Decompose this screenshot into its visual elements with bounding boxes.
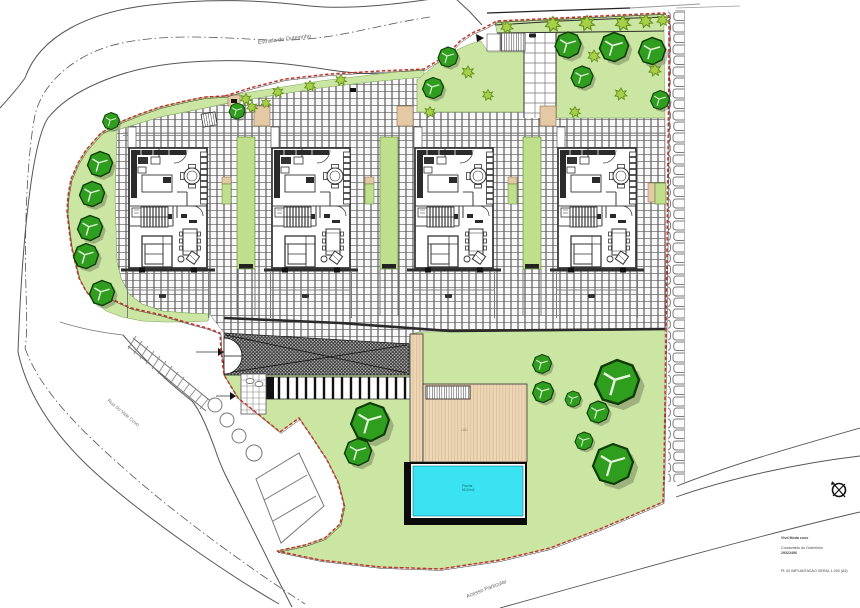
svg-text:65.00m2: 65.00m2 <box>462 488 475 492</box>
svg-text:PL 02 IMPLANTACAO GERAL 1:200: PL 02 IMPLANTACAO GERAL 1:200 (A3) <box>781 569 848 573</box>
svg-text:Condominio do Outeirinho: Condominio do Outeirinho <box>781 546 823 550</box>
svg-text:29322496: 29322496 <box>781 551 797 555</box>
svg-text:Vivd Moda covo: Vivd Moda covo <box>781 536 809 540</box>
svg-text:LOD: LOD <box>461 428 468 432</box>
